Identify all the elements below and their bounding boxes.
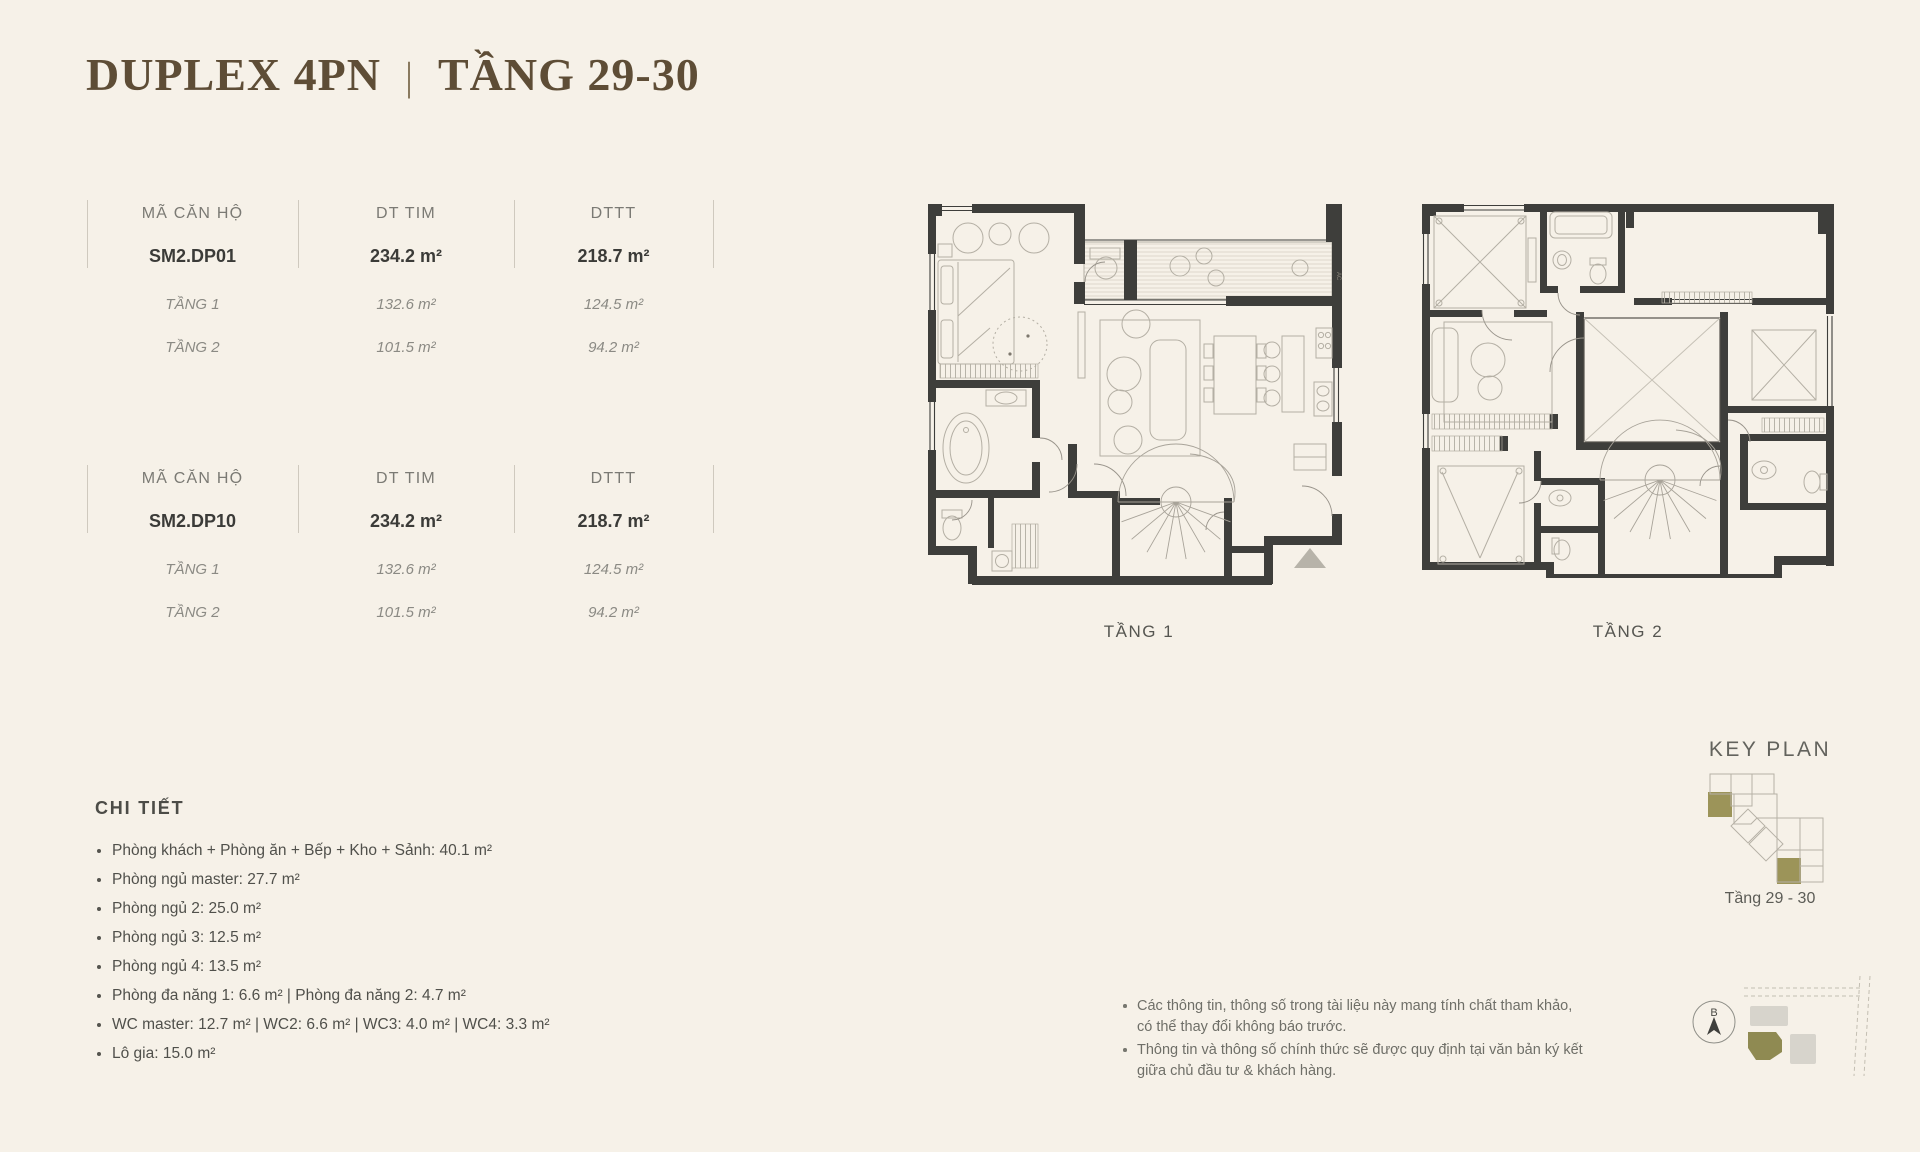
bed-icon	[938, 244, 1014, 364]
bullet-dot	[97, 1023, 101, 1027]
col-header-dttt: DTTT	[514, 462, 713, 504]
details-section: CHI TIẾT Phòng khách + Phòng ăn + Bếp + …	[95, 798, 655, 1073]
detail-text: WC master: 12.7 m² | WC2: 6.6 m² | WC3: …	[112, 1016, 550, 1033]
floor-label: TẦNG 1	[87, 548, 298, 591]
unit-table-dp10: MÃ CĂN HỘ DT TIM DTTT SM2.DP10 234.2 m² …	[87, 462, 713, 634]
entry-marker-triangle	[1294, 548, 1326, 568]
detail-text: Phòng ngủ master: 27.7 m²	[112, 871, 300, 888]
wardrobe-hatch	[1432, 436, 1502, 451]
detail-item: Phòng ngủ master: 27.7 m²	[95, 870, 655, 890]
table-unit-row: SM2.DP01 234.2 m² 218.7 m²	[87, 239, 713, 283]
table-divider	[514, 465, 515, 533]
floor-dt-tim: 101.5 m²	[298, 591, 514, 634]
wardrobe-hatch	[1662, 292, 1752, 303]
toilet-icon	[1590, 258, 1606, 284]
unit-dttt: 218.7 m²	[514, 239, 713, 283]
compass-north-icon: B	[1691, 999, 1737, 1045]
location-mini-map	[1742, 974, 1887, 1079]
shelf-icon	[1528, 238, 1536, 282]
table-floor-row: TẦNG 2 101.5 m² 94.2 m²	[87, 591, 713, 634]
col-header-dt-tim: DT TIM	[298, 462, 514, 504]
page-title-left: DUPLEX 4PN	[86, 49, 381, 100]
keyplan-title: KEY PLAN	[1690, 738, 1850, 762]
side-table-icon	[989, 223, 1011, 245]
detail-item: Lô gia: 15.0 m²	[95, 1044, 655, 1064]
bathtub-icon	[1550, 212, 1612, 238]
cooktop-icon	[1316, 328, 1332, 358]
floorplan-tang1: AC	[928, 194, 1350, 594]
toilet-icon	[1804, 471, 1827, 493]
bullet-dot	[97, 994, 101, 998]
kitchen-sink-icon	[1314, 382, 1332, 416]
bullet-dot	[1123, 1048, 1127, 1052]
spiral-stair-icon	[1600, 420, 1721, 539]
detail-text: Phòng ngủ 2: 25.0 m²	[112, 900, 261, 917]
bed-icon	[1438, 466, 1524, 564]
pouf-icon	[1471, 343, 1505, 377]
unit-dt-tim: 234.2 m²	[298, 239, 514, 283]
void-square	[1584, 318, 1720, 442]
detail-text: Phòng ngủ 4: 13.5 m²	[112, 958, 261, 975]
detail-text: Lô gia: 15.0 m²	[112, 1045, 215, 1062]
col-header-unit-code: MÃ CĂN HỘ	[87, 462, 298, 504]
unit-table-dp01: MÃ CĂN HỘ DT TIM DTTT SM2.DP01 234.2 m² …	[87, 197, 713, 369]
page-title: DUPLEX 4PN|TẦNG 29-30	[86, 48, 700, 101]
plan-label-tang2: TẦNG 2	[1518, 622, 1738, 642]
floor-dt-tim: 132.6 m²	[298, 548, 514, 591]
dining-table-icon	[1204, 336, 1266, 414]
keyplan-outlines	[1710, 774, 1823, 882]
sofa-icon	[1432, 328, 1458, 402]
floor-dttt: 94.2 m²	[514, 326, 713, 369]
floor-dttt: 94.2 m²	[514, 591, 713, 634]
round-rug-icon	[993, 317, 1047, 371]
page-title-right: TẦNG 29-30	[438, 49, 700, 100]
pouf-icon	[1107, 357, 1141, 391]
walls	[1422, 204, 1834, 578]
table-floor-row: TẦNG 2 101.5 m² 94.2 m²	[87, 326, 713, 369]
table-floor-row: TẦNG 1 132.6 m² 124.5 m²	[87, 548, 713, 591]
detail-text: Phòng khách + Phòng ăn + Bếp + Kho + Sản…	[112, 842, 492, 859]
table-divider	[713, 200, 714, 268]
kitchen-island-icon	[1264, 336, 1304, 412]
toilet-icon	[1552, 538, 1570, 560]
keyplan-caption: Tầng 29 - 30	[1685, 890, 1855, 908]
bed-icon	[1752, 330, 1816, 400]
detail-item: Phòng ngủ 4: 13.5 m²	[95, 957, 655, 977]
toilet-icon	[942, 510, 962, 540]
table-divider	[87, 465, 88, 533]
bullet-dot	[97, 1052, 101, 1056]
bathtub-icon	[943, 413, 989, 483]
floor-dttt: 124.5 m²	[514, 548, 713, 591]
note-text: Các thông tin, thông số trong tài liệu n…	[1137, 998, 1572, 1035]
keyplan-diagram	[1700, 772, 1830, 890]
bullet-dot	[97, 849, 101, 853]
vanity-sink-icon	[986, 390, 1026, 406]
table-divider	[87, 200, 88, 268]
floor-dt-tim: 132.6 m²	[298, 283, 514, 326]
floor-dt-tim: 101.5 m²	[298, 326, 514, 369]
map-building	[1790, 1034, 1816, 1064]
washer-icon	[992, 551, 1012, 571]
detail-item: Phòng ngủ 3: 12.5 m²	[95, 928, 655, 948]
bullet-dot	[97, 936, 101, 940]
detail-item: Phòng ngủ 2: 25.0 m²	[95, 899, 655, 919]
details-heading: CHI TIẾT	[95, 798, 655, 819]
floor-label: TẦNG 1	[87, 283, 298, 326]
sofa-icon	[1150, 340, 1186, 440]
closet-hatch	[940, 364, 1038, 378]
armchair-icon	[1122, 310, 1150, 338]
col-header-dt-tim: DT TIM	[298, 197, 514, 239]
bullet-dot	[97, 965, 101, 969]
detail-item: WC master: 12.7 m² | WC2: 6.6 m² | WC3: …	[95, 1015, 655, 1035]
table-divider	[298, 200, 299, 268]
unit-dttt: 218.7 m²	[514, 504, 713, 548]
pouf-icon	[1478, 376, 1502, 400]
detail-item: Phòng khách + Phòng ăn + Bếp + Kho + Sản…	[95, 841, 655, 861]
col-header-unit-code: MÃ CĂN HỘ	[87, 197, 298, 239]
bullet-dot	[1123, 1004, 1127, 1008]
balcony	[1084, 242, 1332, 299]
floor-label: TẦNG 2	[87, 326, 298, 369]
bullet-dot	[97, 907, 101, 911]
armchair-icon	[1019, 223, 1049, 253]
floor-dttt: 124.5 m²	[514, 283, 713, 326]
unit-dt-tim: 234.2 m²	[298, 504, 514, 548]
table-header-row: MÃ CĂN HỘ DT TIM DTTT	[87, 462, 713, 504]
table-header-row: MÃ CĂN HỘ DT TIM DTTT	[87, 197, 713, 239]
table-divider	[298, 465, 299, 533]
detail-item: Phòng đa năng 1: 6.6 m² | Phòng đa năng …	[95, 986, 655, 1006]
note-item: Thông tin và thông số chính thức sẽ được…	[1122, 1040, 1692, 1082]
plan-label-tang1: TẦNG 1	[1029, 622, 1249, 642]
floor-label: TẦNG 2	[87, 591, 298, 634]
wardrobe-hatch	[1762, 418, 1824, 432]
note-text: Thông tin và thông số chính thức sẽ được…	[1137, 1042, 1583, 1079]
detail-text: Phòng đa năng 1: 6.6 m² | Phòng đa năng …	[112, 987, 466, 1004]
sink-icon	[1752, 461, 1776, 479]
col-header-dttt: DTTT	[514, 197, 713, 239]
pouf-icon	[1108, 390, 1132, 414]
unit-code: SM2.DP10	[87, 504, 298, 548]
table-unit-row: SM2.DP10 234.2 m² 218.7 m²	[87, 504, 713, 548]
floorplan-tang2	[1422, 198, 1834, 578]
map-building	[1750, 1006, 1788, 1026]
sink-icon	[1553, 251, 1571, 269]
storage-stairs-hatch	[1012, 524, 1038, 568]
armchair-icon	[953, 223, 983, 253]
armchair-icon	[1114, 426, 1142, 454]
ac-label: AC	[1335, 272, 1341, 281]
spiral-stair-icon	[1118, 444, 1235, 559]
tv-console-icon	[1078, 312, 1085, 378]
bullet-dot	[97, 878, 101, 882]
table-floor-row: TẦNG 1 132.6 m² 124.5 m²	[87, 283, 713, 326]
furniture	[1432, 212, 1827, 564]
sink-icon	[1549, 490, 1571, 506]
note-item: Các thông tin, thông số trong tài liệu n…	[1122, 996, 1692, 1038]
unit-code: SM2.DP01	[87, 239, 298, 283]
detail-text: Phòng ngủ 3: 12.5 m²	[112, 929, 261, 946]
table-divider	[514, 200, 515, 268]
table-divider	[713, 465, 714, 533]
bed-icon	[1434, 216, 1526, 308]
page-title-separator: |	[405, 54, 414, 99]
notes-section: Các thông tin, thông số trong tài liệu n…	[1122, 996, 1692, 1084]
map-project-building	[1748, 1032, 1782, 1060]
fridge-icon	[1294, 444, 1326, 470]
